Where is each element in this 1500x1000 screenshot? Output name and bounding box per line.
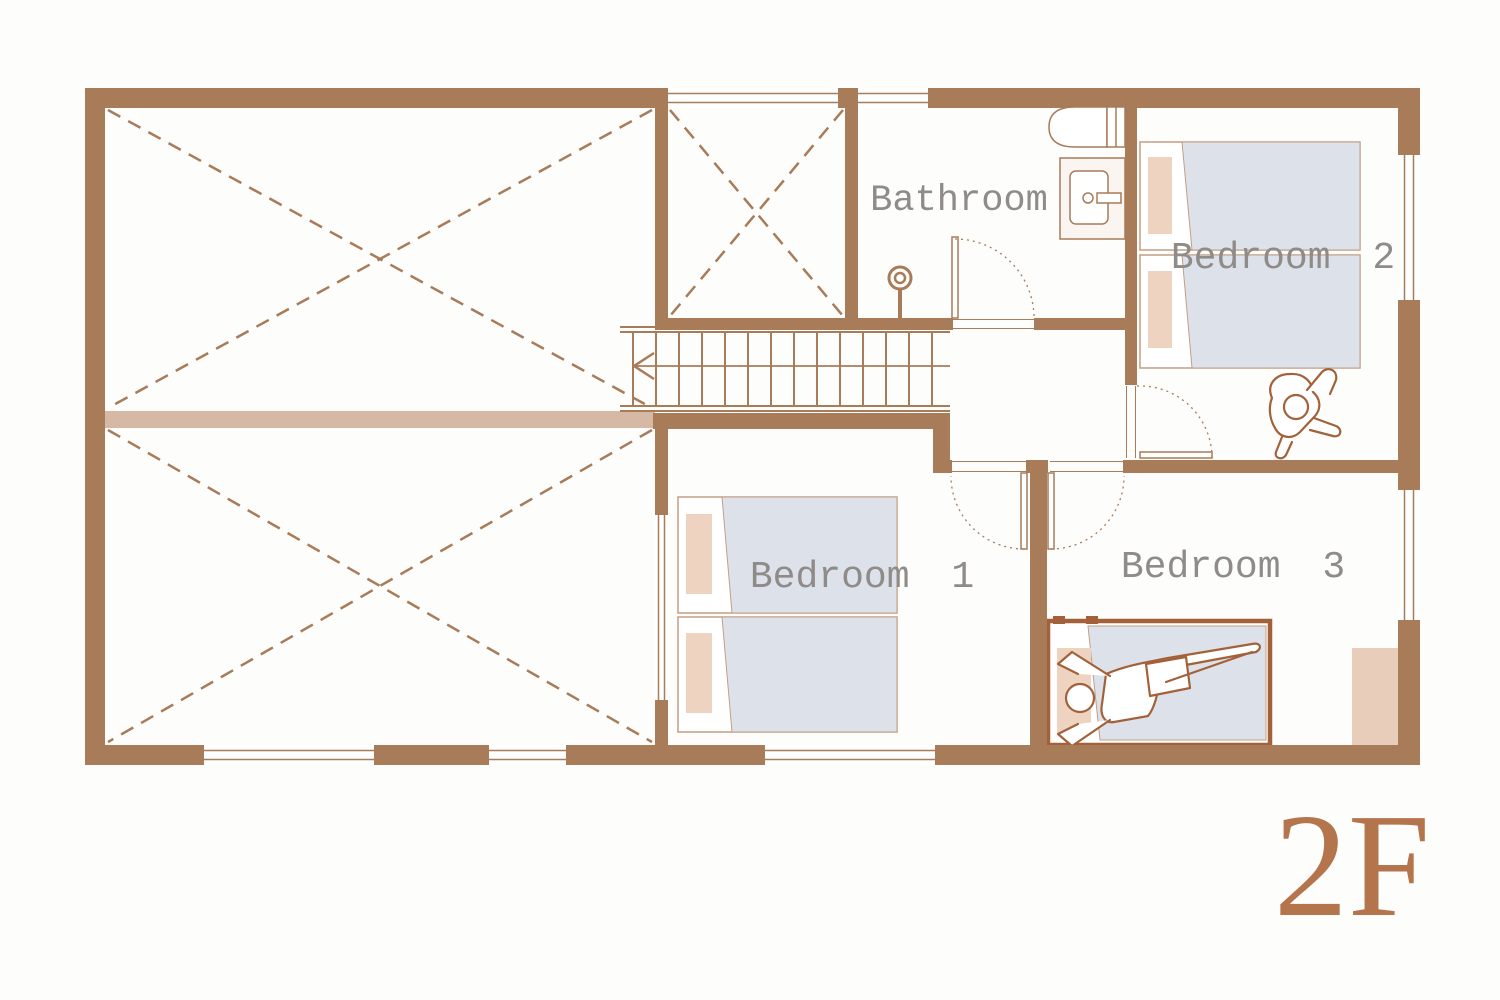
person-limb xyxy=(1310,418,1340,436)
window-bottom-bedroom1 xyxy=(765,745,935,765)
wall-bathroom-bottom-a xyxy=(655,318,953,330)
bedroom2-door-arc xyxy=(1137,386,1212,458)
bedroom3-door-arc xyxy=(1051,476,1124,549)
toilet-bowl xyxy=(1049,107,1107,147)
wall-shaft-left xyxy=(655,95,668,330)
person-head xyxy=(1284,395,1308,419)
wall-shaft-bathroom xyxy=(845,95,858,318)
bedroom2-label: Bedroom 2 xyxy=(1171,237,1395,280)
bed-tab xyxy=(1086,616,1098,624)
wall-bedroom2-left xyxy=(1125,95,1137,385)
toilet-icon xyxy=(1049,107,1125,147)
void-x-upper xyxy=(108,110,652,408)
pillow xyxy=(686,514,712,594)
person-head xyxy=(1066,684,1094,712)
window-bottom-void-1 xyxy=(204,745,374,765)
blanket xyxy=(1182,142,1360,250)
drain-outer xyxy=(889,267,911,289)
wall-outer-left xyxy=(85,88,105,765)
sink-faucet xyxy=(1097,193,1121,203)
wall-bathroom-bottom-b xyxy=(1034,318,1137,330)
wall-hall-step xyxy=(933,413,950,473)
window-interior-void xyxy=(655,515,668,700)
wall-bedroom1-bedroom3 xyxy=(1030,473,1047,745)
person-walking-icon xyxy=(1270,369,1340,458)
wall-hall-bottom-pillar xyxy=(1026,460,1048,473)
pillow xyxy=(1148,271,1172,348)
door-thresholds xyxy=(952,320,1136,472)
bedroom3-door-leaf xyxy=(1048,473,1054,549)
blanket xyxy=(722,617,897,732)
bedroom1-door-arc xyxy=(951,476,1024,549)
void-divider-beam xyxy=(105,411,655,428)
person-limb xyxy=(1307,369,1336,394)
stair-rails xyxy=(620,327,950,411)
bedroom2-door-leaf xyxy=(1140,452,1212,458)
bedroom3-label: Bedroom 3 xyxy=(1121,546,1345,589)
bathroom-label: Bathroom xyxy=(870,180,1048,222)
window-right-bedroom2 xyxy=(1398,155,1420,300)
drain-inner xyxy=(895,273,905,283)
pillow xyxy=(1148,157,1172,234)
sink-drain xyxy=(1083,193,1093,203)
window-right-bedroom3 xyxy=(1398,490,1420,620)
floor-drain-icon xyxy=(889,267,911,318)
shaft-x xyxy=(670,110,843,316)
wall-bedroom2-bottom xyxy=(1123,460,1420,473)
sink-vanity-icon xyxy=(1060,158,1125,239)
pillow xyxy=(686,633,712,713)
person-limb xyxy=(1276,437,1292,458)
floorplan-2f: Bathroom Bedroom 1 Bedroom 2 Bedroom 3 2… xyxy=(0,0,1500,1000)
wall-void-bedroom1-b xyxy=(655,700,668,745)
staircase xyxy=(620,327,950,411)
bed-tab xyxy=(1053,616,1065,624)
bedroom3-closet xyxy=(1352,648,1398,745)
floor-label: 2F xyxy=(1274,792,1430,940)
wall-under-stairs xyxy=(653,413,950,429)
bedroom1-label: Bedroom 1 xyxy=(750,556,974,599)
bathroom-door-arc xyxy=(955,239,1034,318)
window-top-bathroom xyxy=(858,88,928,108)
window-top-shaft xyxy=(668,88,838,108)
stair-treads xyxy=(633,332,932,406)
void-x-lower xyxy=(108,430,652,742)
window-bottom-void-2 xyxy=(489,745,566,765)
bedroom1-door-leaf xyxy=(1021,473,1027,549)
bathroom-door-leaf xyxy=(952,237,958,318)
